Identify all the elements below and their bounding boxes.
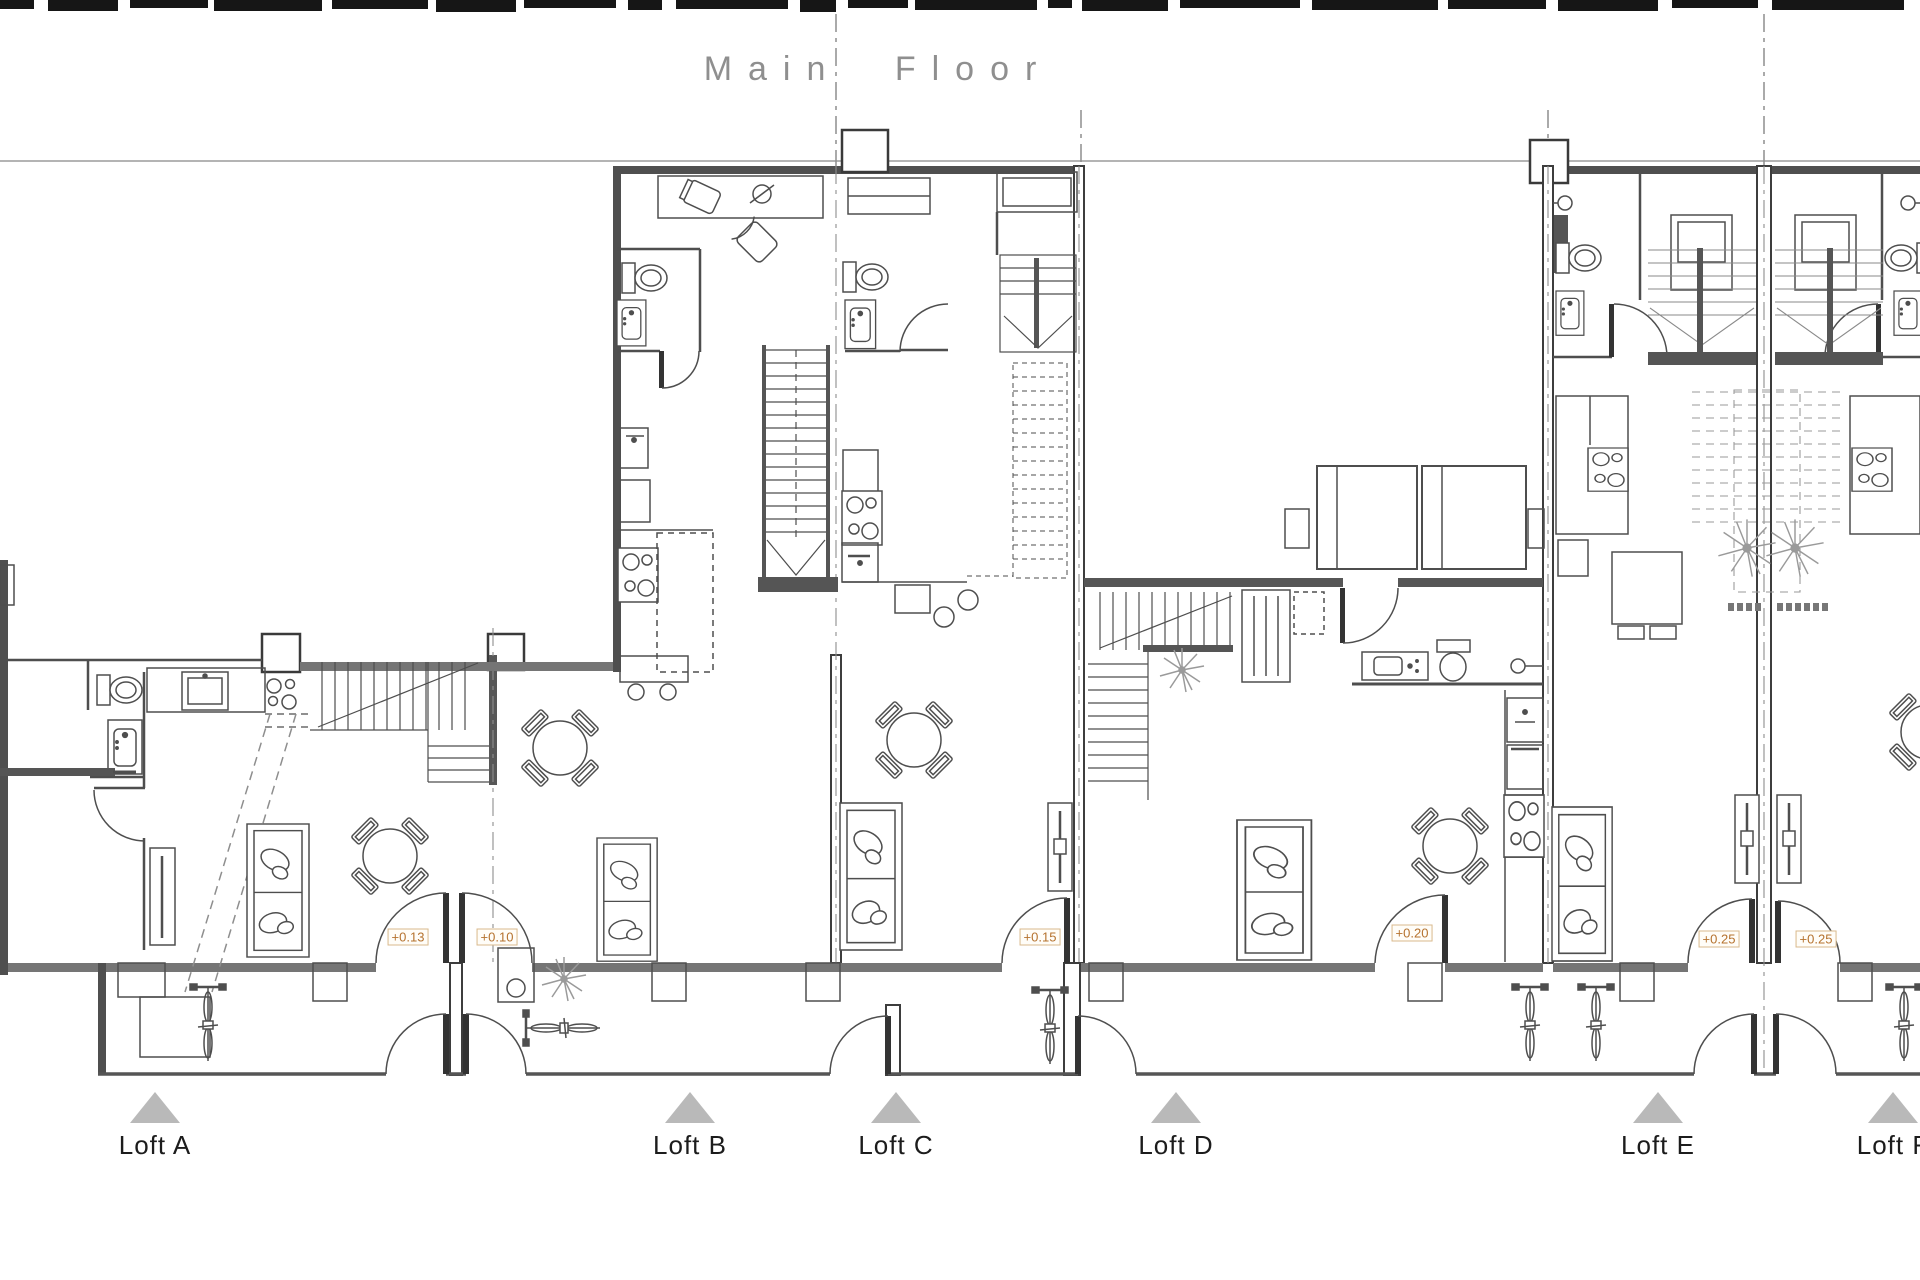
elevation-marker: +0.10	[477, 929, 518, 946]
loft-marker-triangle-icon	[1868, 1092, 1918, 1123]
loft-marker-triangle-icon	[871, 1092, 921, 1123]
elevation-marker: +0.15	[1020, 929, 1061, 946]
elevation-marker: +0.20	[1392, 925, 1433, 942]
floor-plan-page: Main Floor Loft A Loft B Loft C Loft D L…	[0, 0, 1920, 1280]
loft-label-group-loft-c: Loft C	[816, 1092, 976, 1161]
loft-label-group-loft-e: Loft E	[1578, 1092, 1738, 1161]
loft-label: Loft E	[1578, 1130, 1738, 1161]
loft-label-group-loft-d: Loft D	[1096, 1092, 1256, 1161]
loft-label: Loft D	[1096, 1130, 1256, 1161]
elevation-marker: +0.25	[1699, 931, 1740, 948]
loft-marker-triangle-icon	[665, 1092, 715, 1123]
loft-label: Loft B	[610, 1130, 770, 1161]
loft-label-group-loft-f: Loft F	[1813, 1092, 1920, 1161]
loft-label: Loft C	[816, 1130, 976, 1161]
loft-marker-triangle-icon	[130, 1092, 180, 1123]
loft-label-group-loft-a: Loft A	[75, 1092, 235, 1161]
loft-label-group-loft-b: Loft B	[610, 1092, 770, 1161]
loft-marker-triangle-icon	[1151, 1092, 1201, 1123]
loft-marker-triangle-icon	[1633, 1092, 1683, 1123]
labels-overlay: Loft A Loft B Loft C Loft D Loft E Loft …	[0, 0, 1920, 1280]
loft-label: Loft F	[1813, 1130, 1920, 1161]
loft-label: Loft A	[75, 1130, 235, 1161]
elevation-marker: +0.25	[1796, 931, 1837, 948]
elevation-marker: +0.13	[388, 929, 429, 946]
